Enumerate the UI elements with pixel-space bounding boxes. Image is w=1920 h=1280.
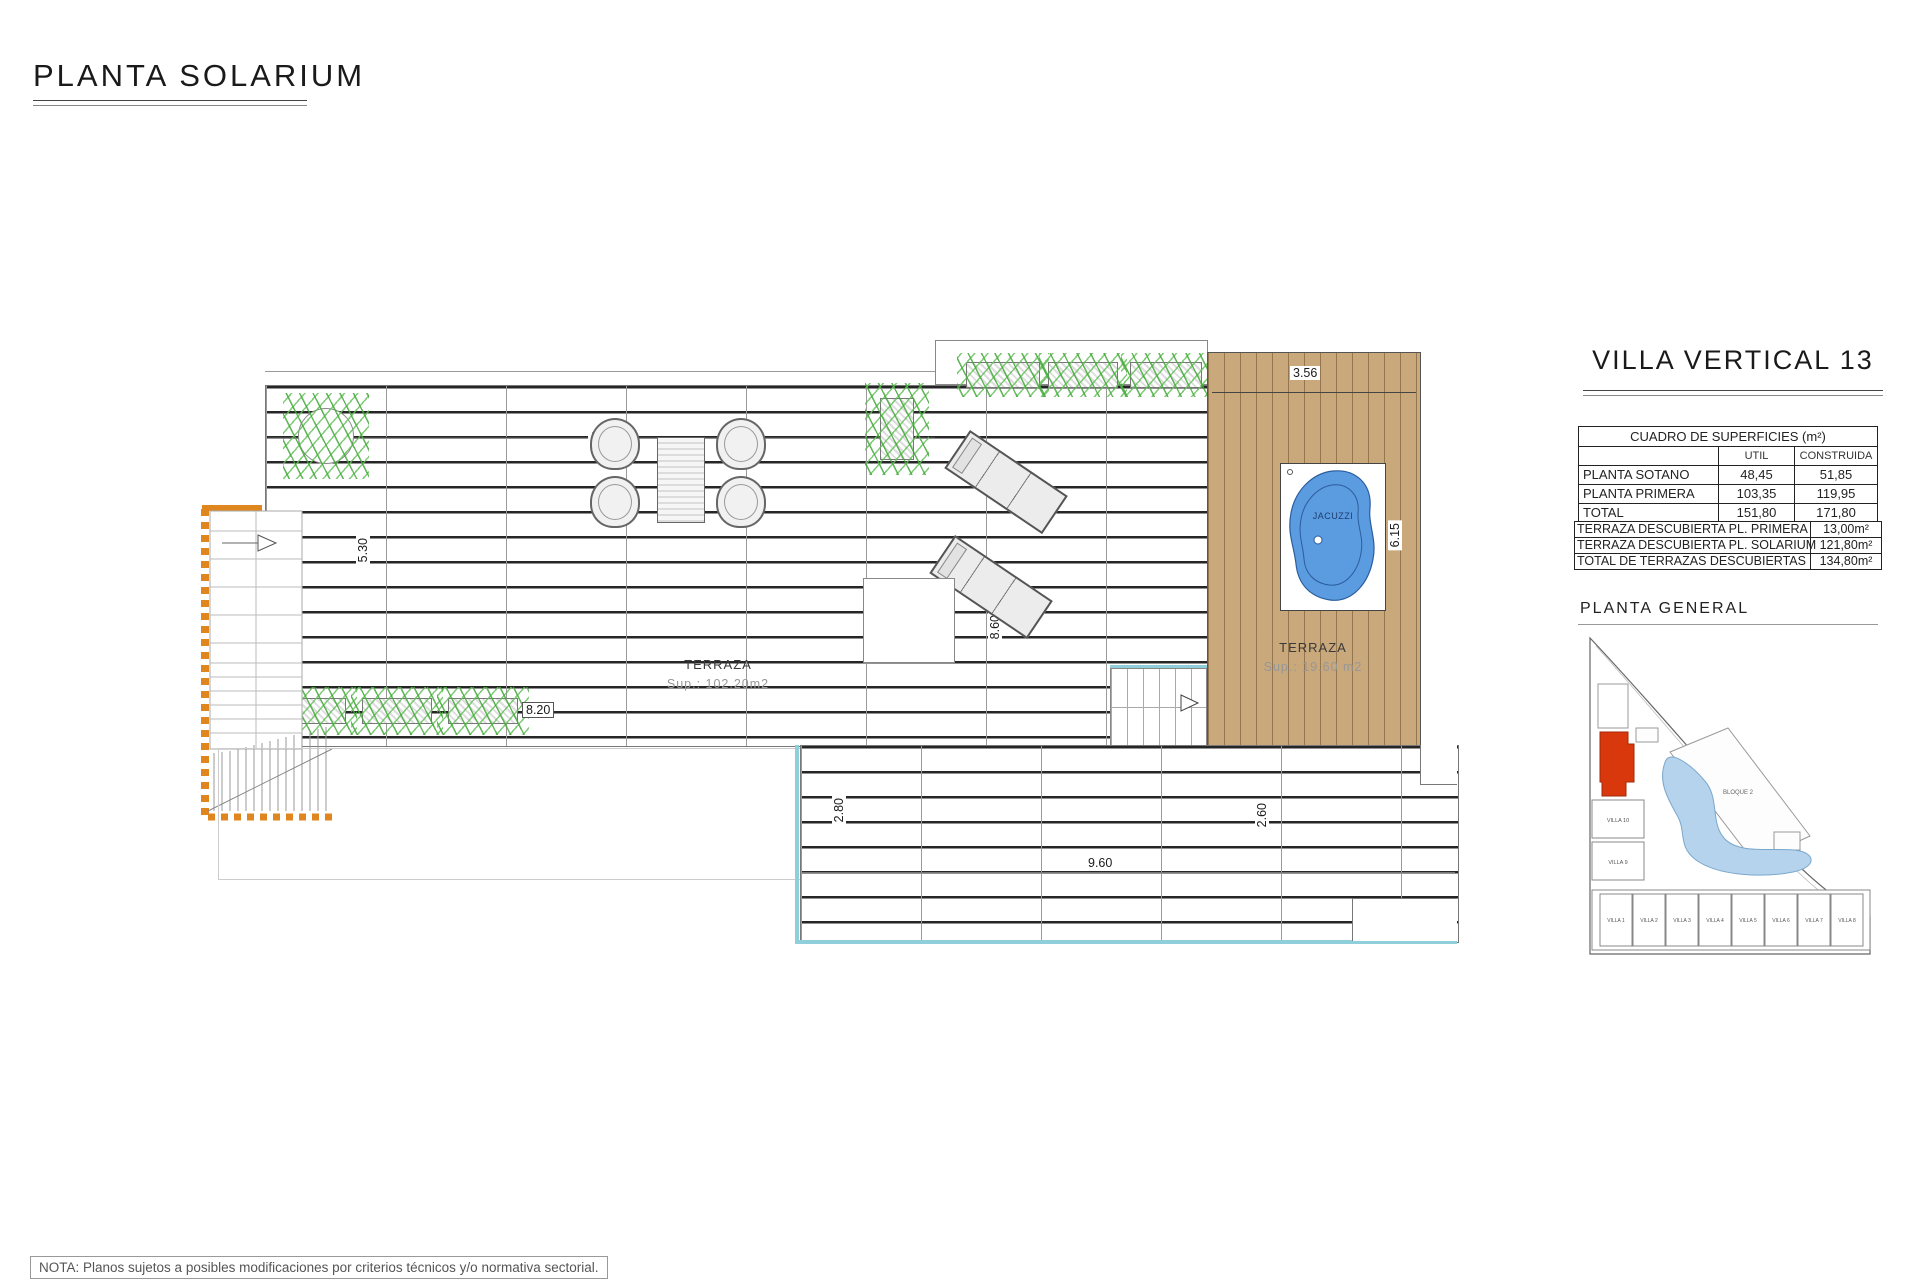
dim-lower-right-height: 2.60 — [1255, 800, 1269, 830]
planter — [448, 698, 518, 724]
villa-title-underline — [1583, 390, 1883, 396]
main-terrace-label: TERRAZA Sup.: 102.20m2 — [640, 655, 796, 693]
drawing-sheet: PLANTA SOLARIUM 3.56 6.15 JACUZZI TERRAZ… — [0, 0, 1920, 1280]
surfaces-table: CUADRO DE SUPERFICIES (m²) UTIL CONSTRUI… — [1578, 426, 1878, 523]
dim-planter-width: 8.20 — [522, 702, 554, 718]
site-villa-label: VILLA 10 — [1607, 818, 1629, 824]
chair — [590, 418, 640, 470]
site-plan-map: BLOQUE 2 VILLA 10 VILLA 9 VILLA 1 VILLA … — [1578, 632, 1878, 962]
page-title: PLANTA SOLARIUM — [33, 58, 365, 94]
note-box: NOTA: Planos sujetos a posibles modifica… — [30, 1256, 608, 1279]
site-villa-label: VILLA 6 — [1772, 918, 1790, 924]
site-villa-label: VILLA 7 — [1805, 918, 1823, 924]
table-row-name: TERRAZA DESCUBIERTA PL. SOLARIUM — [1575, 538, 1811, 554]
jacuzzi-label: JACUZZI — [1313, 511, 1354, 521]
site-villa-label: VILLA 8 — [1838, 918, 1856, 924]
dining-table — [657, 437, 705, 523]
chair — [716, 476, 766, 528]
jacuzzi: JACUZZI — [1280, 463, 1386, 611]
dim-line-deck-width — [1212, 392, 1416, 393]
table-cell: 134,80m² — [1811, 554, 1881, 569]
villa-title: VILLA VERTICAL 13 — [1583, 345, 1883, 376]
parapet-line — [265, 371, 937, 372]
dim-deck-height: 6.15 — [1388, 520, 1402, 550]
terraces-table: TERRAZA DESCUBIERTA PL. PRIMERA 13,00m² … — [1574, 521, 1882, 570]
dim-lower-left-height: 2.80 — [832, 795, 846, 825]
table-row-name: PLANTA PRIMERA — [1579, 485, 1719, 504]
table-row-name: TOTAL — [1579, 504, 1719, 522]
chair — [590, 476, 640, 528]
planter — [966, 362, 1040, 388]
table-cell: 13,00m² — [1811, 522, 1881, 538]
planter — [362, 698, 432, 724]
table-cell: 119,95 — [1795, 485, 1877, 504]
tree-planter — [298, 408, 354, 464]
site-bloque-label: BLOQUE 2 — [1723, 790, 1754, 796]
table-row-name: PLANTA SOTANO — [1579, 466, 1719, 485]
jacuzzi-drawing: JACUZZI — [1280, 463, 1386, 611]
lower-terrace-notch-right — [1420, 745, 1457, 785]
col-header-construida: CONSTRUIDA — [1795, 447, 1877, 466]
title-underline — [33, 100, 307, 106]
site-villa-label: VILLA 4 — [1706, 918, 1724, 924]
site-plan-title: PLANTA GENERAL — [1580, 600, 1749, 618]
deck-terrace-label: TERRAZA Sup.: 19.60 m2 — [1238, 638, 1388, 676]
lower-terrace-notch-bottom — [1352, 898, 1457, 941]
table-cell: 151,80 — [1719, 504, 1795, 522]
surfaces-table-title: CUADRO DE SUPERFICIES (m²) — [1579, 427, 1877, 447]
table-cell: 171,80 — [1795, 504, 1877, 522]
lower-floor-outline — [218, 748, 802, 880]
dim-deck-width: 3.56 — [1290, 366, 1320, 380]
table-cell: 121,80m² — [1811, 538, 1881, 554]
table-cell: 51,85 — [1795, 466, 1877, 485]
table-row-name: TERRAZA DESCUBIERTA PL. PRIMERA — [1575, 522, 1811, 538]
table-row-name: TOTAL DE TERRAZAS DESCUBIERTAS — [1575, 554, 1811, 569]
site-plan-underline — [1578, 624, 1878, 625]
dim-left-height: 5.30 — [356, 535, 370, 565]
site-villa-label: VILLA 1 — [1607, 918, 1625, 924]
planter — [1048, 362, 1118, 388]
lower-terrace-left-edge — [795, 745, 799, 944]
site-villa-label: VILLA 9 — [1608, 860, 1627, 866]
deck-stairs-top-edge — [1110, 665, 1207, 668]
site-villa-label: VILLA 5 — [1739, 918, 1757, 924]
chair — [716, 418, 766, 470]
site-villa-label: VILLA 2 — [1640, 918, 1658, 924]
stairs-direction-arrow — [1180, 694, 1200, 712]
table-cell: 103,35 — [1719, 485, 1795, 504]
tall-planter — [880, 398, 914, 460]
col-header-util: UTIL — [1719, 447, 1795, 466]
table-cell: 48,45 — [1719, 466, 1795, 485]
planter — [1130, 362, 1202, 388]
dim-lower-width: 9.60 — [1085, 856, 1115, 870]
dim-line-lower-width — [802, 872, 1455, 873]
roof-opening — [863, 578, 955, 663]
site-villa-label: VILLA 3 — [1673, 918, 1691, 924]
